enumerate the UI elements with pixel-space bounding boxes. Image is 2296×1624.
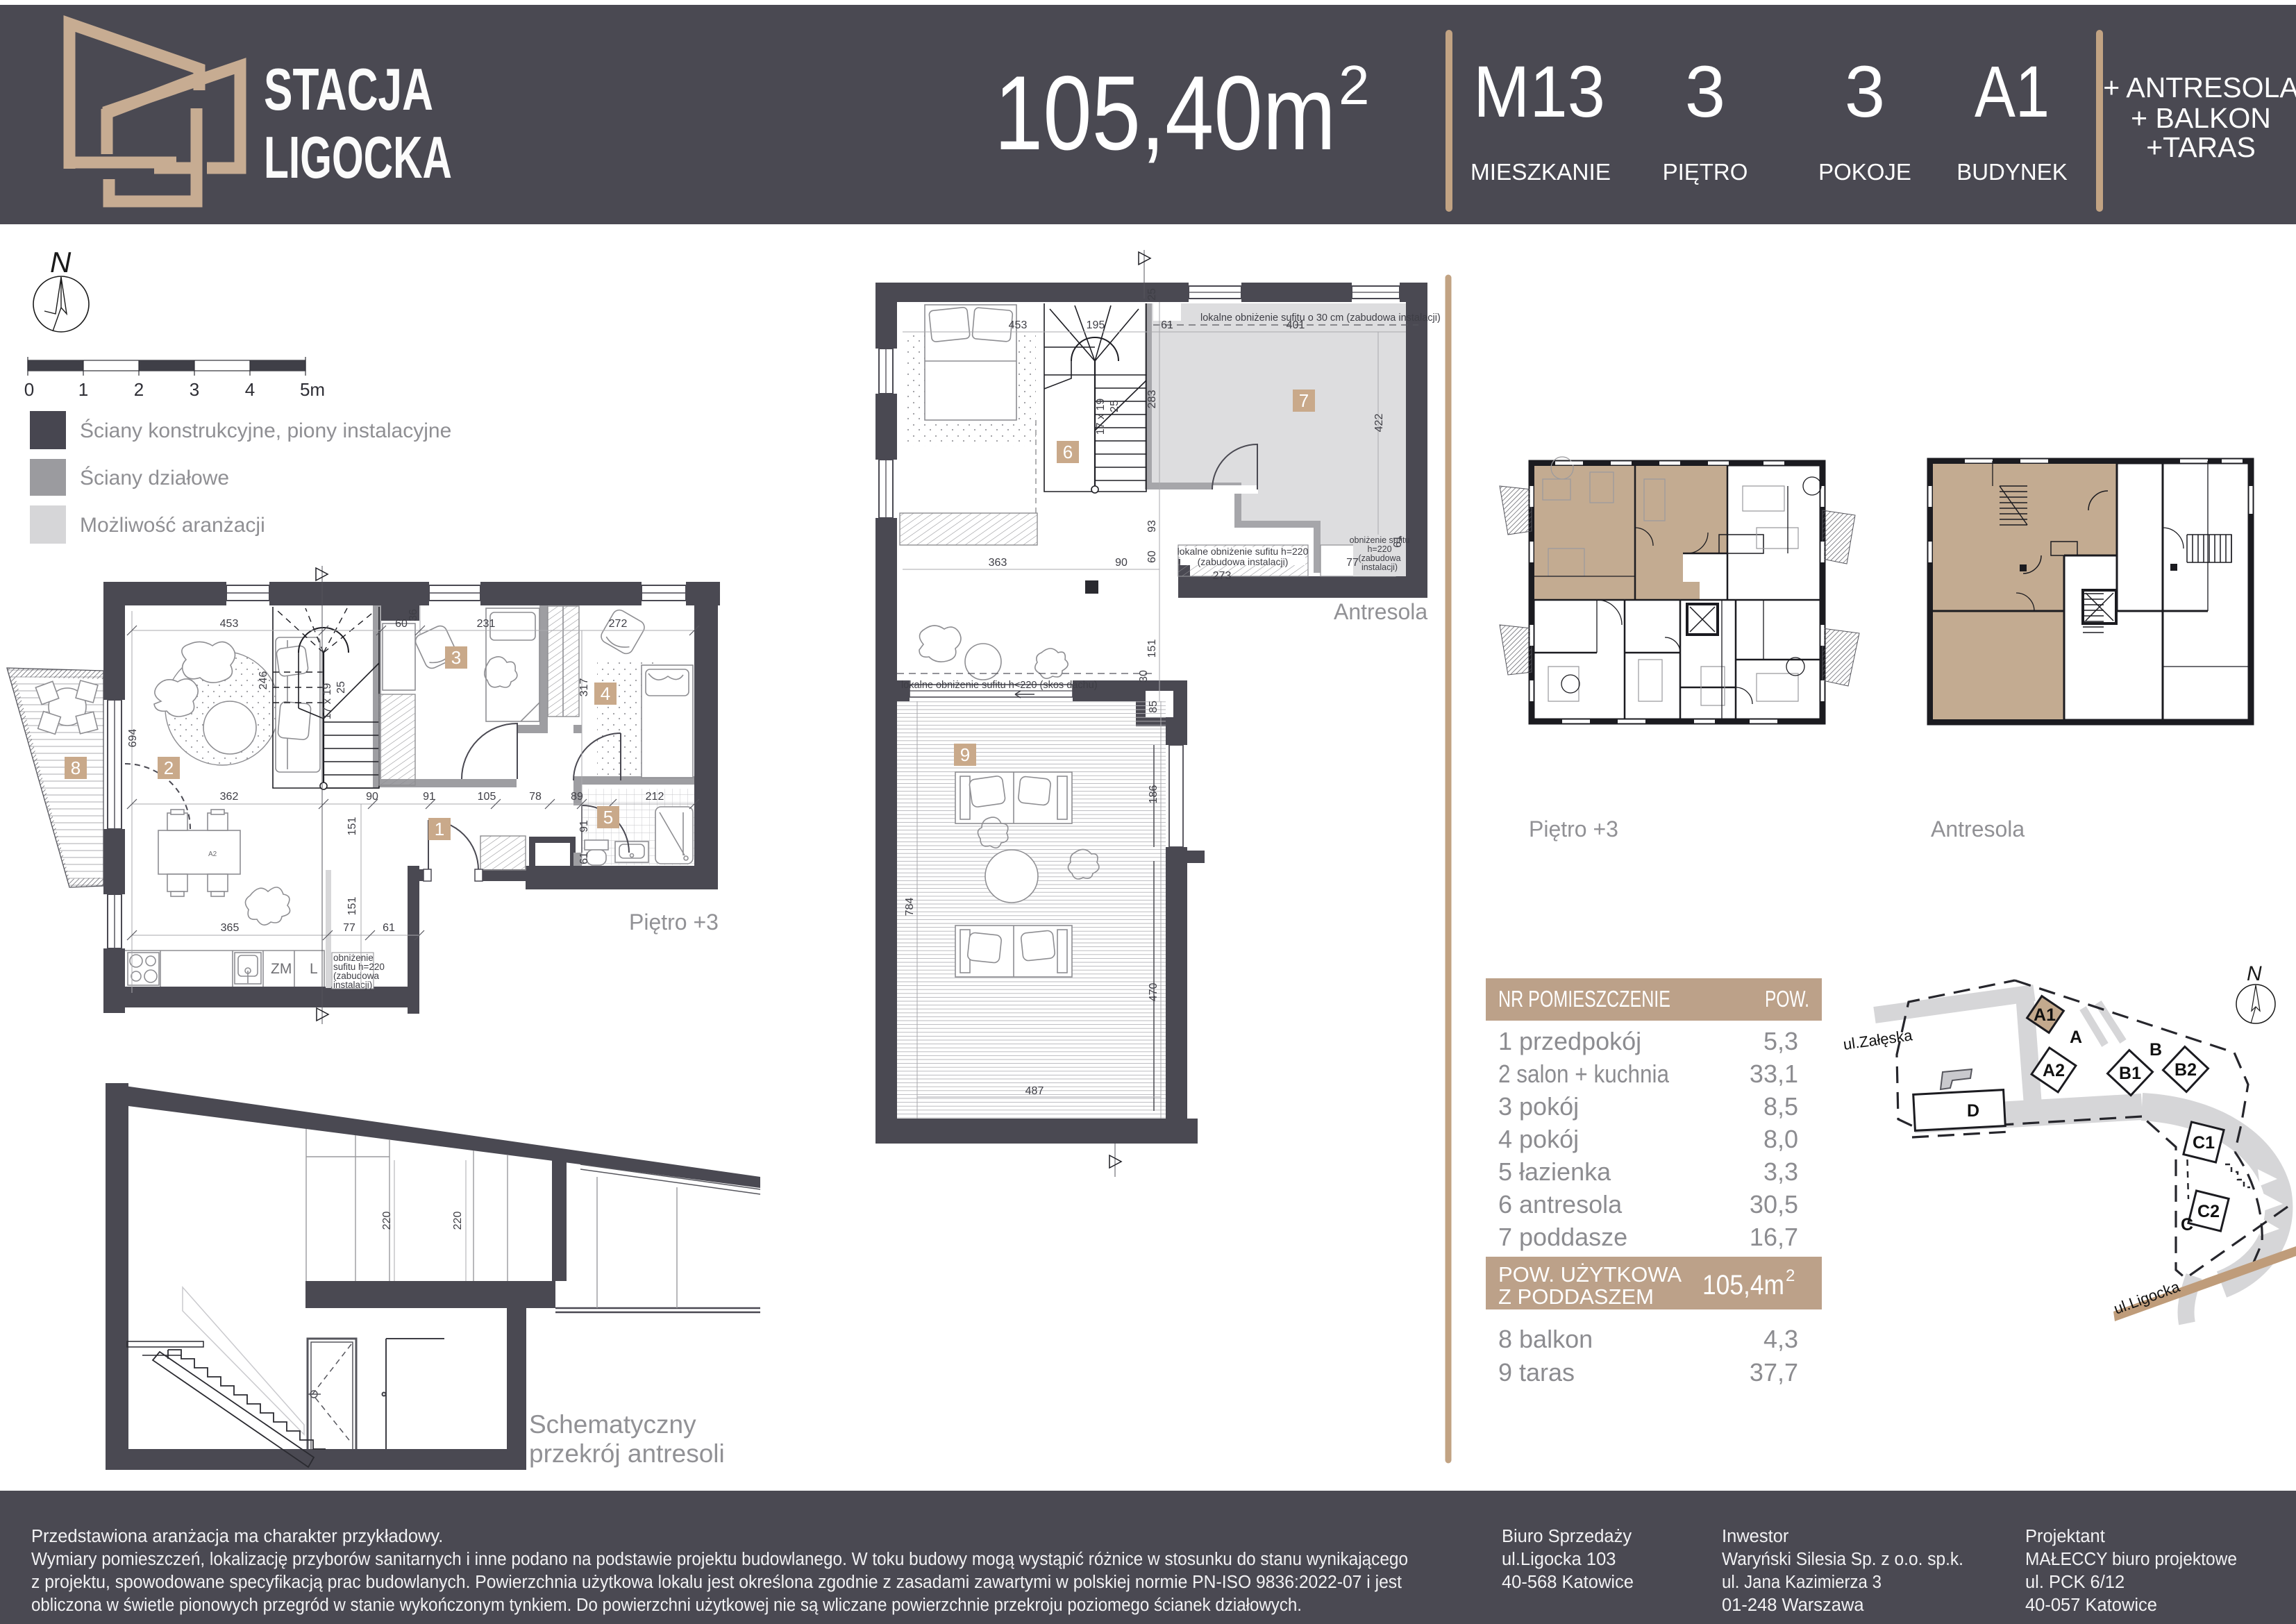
svg-text:ul. Jana Kazimierza 3: ul. Jana Kazimierza 3 bbox=[1722, 1573, 1882, 1592]
svg-text:401: 401 bbox=[1287, 319, 1305, 331]
svg-text:3: 3 bbox=[1845, 51, 1885, 133]
svg-text:105,4m: 105,4m bbox=[1702, 1270, 1784, 1300]
svg-text:220: 220 bbox=[452, 1212, 464, 1230]
svg-text:40-057 Katowice: 40-057 Katowice bbox=[2025, 1596, 2157, 1615]
svg-text:1: 1 bbox=[435, 819, 444, 839]
svg-text:2: 2 bbox=[164, 757, 174, 778]
svg-text:A1: A1 bbox=[2034, 1005, 2056, 1025]
svg-text:(zabudowa: (zabudowa bbox=[1358, 553, 1400, 563]
svg-text:STACJA: STACJA bbox=[264, 57, 433, 123]
svg-text:POW. UŻYTKOWA: POW. UŻYTKOWA bbox=[1498, 1262, 1682, 1287]
svg-text:L: L bbox=[310, 961, 318, 977]
svg-text:Piętro +3: Piętro +3 bbox=[629, 910, 719, 935]
svg-text:61: 61 bbox=[1392, 535, 1404, 548]
svg-text:30: 30 bbox=[1138, 670, 1150, 683]
svg-text:lokalne obniżenie sufitu h<220: lokalne obniżenie sufitu h<220 (skos dac… bbox=[901, 680, 1098, 691]
svg-text:5 łazienka: 5 łazienka bbox=[1498, 1157, 1611, 1186]
svg-text:7 poddasze: 7 poddasze bbox=[1498, 1223, 1627, 1251]
svg-text:01-248 Warszawa: 01-248 Warszawa bbox=[1722, 1596, 1864, 1615]
svg-text:Ściany konstrukcyjne, piony in: Ściany konstrukcyjne, piony instalacyjne bbox=[80, 419, 451, 442]
svg-text:8: 8 bbox=[71, 757, 81, 778]
svg-text:453: 453 bbox=[220, 618, 239, 630]
svg-text:30,5: 30,5 bbox=[1750, 1190, 1798, 1219]
svg-text:0: 0 bbox=[24, 379, 34, 400]
svg-text:4 pokój: 4 pokój bbox=[1498, 1125, 1579, 1153]
svg-text:A2: A2 bbox=[208, 851, 217, 858]
svg-text:422: 422 bbox=[1373, 414, 1385, 433]
svg-text:lokalne obniżenie sufitu h=220: lokalne obniżenie sufitu h=220 bbox=[1178, 546, 1309, 557]
svg-text:instalacji): instalacji) bbox=[333, 980, 372, 990]
svg-text:470: 470 bbox=[1148, 983, 1159, 1002]
svg-text:lokalne obniżenie sufitu o 30: lokalne obniżenie sufitu o 30 cm (zabudo… bbox=[1200, 312, 1441, 324]
svg-text:7: 7 bbox=[1299, 390, 1309, 411]
svg-text:365: 365 bbox=[221, 922, 240, 934]
svg-text:C: C bbox=[2181, 1215, 2193, 1234]
svg-text:Projektant: Projektant bbox=[2025, 1527, 2105, 1546]
svg-text:36: 36 bbox=[408, 609, 419, 621]
svg-text:1: 1 bbox=[78, 379, 88, 400]
svg-text:+ BALKON: + BALKON bbox=[2131, 102, 2271, 134]
svg-text:ZM: ZM bbox=[271, 961, 292, 977]
svg-text:61: 61 bbox=[578, 852, 590, 864]
svg-text:91: 91 bbox=[423, 791, 435, 803]
svg-text:5,3: 5,3 bbox=[1763, 1027, 1798, 1055]
svg-text:3,3: 3,3 bbox=[1763, 1157, 1798, 1186]
svg-text:4: 4 bbox=[245, 379, 255, 400]
svg-text:2: 2 bbox=[1786, 1266, 1795, 1285]
svg-text:B: B bbox=[2150, 1040, 2162, 1060]
svg-text:Schematyczny: Schematyczny bbox=[529, 1410, 696, 1439]
svg-text:MIESZKANIE: MIESZKANIE bbox=[1470, 159, 1611, 185]
svg-text:B2: B2 bbox=[2175, 1060, 2197, 1080]
svg-text:1 przedpokój: 1 przedpokój bbox=[1498, 1027, 1641, 1055]
svg-text:3: 3 bbox=[1685, 51, 1725, 133]
svg-text:+TARAS: +TARAS bbox=[2146, 131, 2256, 163]
svg-text:M13: M13 bbox=[1473, 51, 1605, 133]
svg-text:40-568 Katowice: 40-568 Katowice bbox=[1502, 1573, 1634, 1592]
svg-text:151: 151 bbox=[346, 897, 358, 916]
svg-text:A: A bbox=[2070, 1028, 2082, 1047]
svg-text:8,5: 8,5 bbox=[1763, 1092, 1798, 1121]
svg-text:85: 85 bbox=[1148, 701, 1159, 713]
svg-text:9: 9 bbox=[960, 744, 970, 765]
svg-text:Antresola: Antresola bbox=[1334, 599, 1427, 624]
svg-text:90: 90 bbox=[1115, 557, 1128, 569]
svg-text:246: 246 bbox=[258, 671, 269, 690]
svg-text:ul.Ligocka 103: ul.Ligocka 103 bbox=[1502, 1550, 1616, 1569]
svg-text:5: 5 bbox=[603, 807, 613, 828]
svg-text:2 salon + kuchnia: 2 salon + kuchnia bbox=[1498, 1060, 1670, 1088]
svg-text:5m: 5m bbox=[300, 379, 325, 400]
svg-text:przekrój antresoli: przekrój antresoli bbox=[529, 1439, 725, 1468]
svg-text:105: 105 bbox=[478, 791, 496, 803]
svg-text:ul. PCK 6/12: ul. PCK 6/12 bbox=[2025, 1573, 2125, 1592]
svg-text:694: 694 bbox=[127, 729, 139, 748]
svg-text:N: N bbox=[2247, 962, 2262, 985]
svg-text:151: 151 bbox=[346, 817, 358, 836]
svg-text:105,40m: 105,40m bbox=[994, 54, 1336, 172]
svg-text:Przedstawiona aranżacja ma cha: Przedstawiona aranżacja ma charakter prz… bbox=[31, 1527, 443, 1546]
svg-text:C2: C2 bbox=[2197, 1202, 2220, 1221]
svg-text:317: 317 bbox=[578, 678, 590, 697]
svg-text:186: 186 bbox=[1148, 785, 1159, 804]
svg-text:37,7: 37,7 bbox=[1750, 1358, 1798, 1387]
svg-text:283: 283 bbox=[1146, 390, 1158, 409]
svg-text:4,3: 4,3 bbox=[1763, 1325, 1798, 1353]
svg-text:Wymiary pomieszczeń, lokalizac: Wymiary pomieszczeń, lokalizację przybor… bbox=[31, 1550, 1408, 1569]
svg-text:2: 2 bbox=[1339, 54, 1370, 116]
svg-text:77: 77 bbox=[1346, 557, 1359, 569]
svg-text:3 pokój: 3 pokój bbox=[1498, 1092, 1579, 1121]
svg-text:90: 90 bbox=[366, 791, 378, 803]
svg-text:2: 2 bbox=[134, 379, 144, 400]
svg-text:273: 273 bbox=[1213, 570, 1232, 582]
svg-text:4: 4 bbox=[601, 683, 610, 704]
svg-text:6: 6 bbox=[1063, 442, 1073, 462]
svg-text:instalacji): instalacji) bbox=[1361, 562, 1398, 572]
svg-text:Biuro Sprzedaży: Biuro Sprzedaży bbox=[1502, 1527, 1632, 1546]
svg-text:91: 91 bbox=[578, 820, 590, 832]
svg-text:POKOJE: POKOJE bbox=[1818, 159, 1911, 185]
svg-text:33,1: 33,1 bbox=[1750, 1060, 1798, 1088]
svg-text:BUDYNEK: BUDYNEK bbox=[1956, 159, 2068, 185]
svg-text:231: 231 bbox=[477, 618, 496, 630]
svg-text:A1: A1 bbox=[1975, 51, 2050, 133]
svg-text:NR POMIESZCZENIE: NR POMIESZCZENIE bbox=[1498, 986, 1670, 1012]
svg-text:POW.: POW. bbox=[1765, 986, 1809, 1012]
svg-text:h=220: h=220 bbox=[1367, 544, 1391, 554]
svg-text:89: 89 bbox=[571, 791, 583, 803]
svg-text:60: 60 bbox=[1146, 551, 1158, 563]
svg-text:78: 78 bbox=[529, 791, 542, 803]
svg-text:+ ANTRESOLA: + ANTRESOLA bbox=[2103, 72, 2296, 103]
svg-text:3: 3 bbox=[190, 379, 199, 400]
svg-text:LIGOCKA: LIGOCKA bbox=[264, 125, 452, 191]
svg-text:N: N bbox=[50, 246, 72, 278]
svg-text:8 balkon: 8 balkon bbox=[1498, 1325, 1593, 1353]
svg-text:212: 212 bbox=[646, 791, 664, 803]
svg-text:D: D bbox=[1967, 1101, 1979, 1121]
svg-text:93: 93 bbox=[1146, 520, 1158, 533]
svg-text:60: 60 bbox=[395, 618, 408, 630]
svg-text:C1: C1 bbox=[2193, 1133, 2215, 1153]
svg-text:61: 61 bbox=[383, 922, 395, 934]
svg-text:220: 220 bbox=[381, 1212, 393, 1230]
svg-text:6 antresola: 6 antresola bbox=[1498, 1190, 1623, 1219]
svg-text:Piętro +3: Piętro +3 bbox=[1529, 817, 1618, 842]
svg-text:151: 151 bbox=[1146, 639, 1158, 658]
svg-text:17 x 19: 17 x 19 bbox=[1095, 399, 1107, 435]
svg-text:Możliwość aranżacji: Możliwość aranżacji bbox=[80, 514, 265, 537]
svg-text:272: 272 bbox=[609, 618, 628, 630]
svg-text:25: 25 bbox=[1146, 288, 1158, 301]
svg-text:Antresola: Antresola bbox=[1931, 817, 2025, 842]
svg-text:25: 25 bbox=[1109, 400, 1121, 412]
svg-text:362: 362 bbox=[220, 791, 239, 803]
svg-text:(zabudowa instalacji): (zabudowa instalacji) bbox=[1198, 556, 1289, 567]
svg-text:363: 363 bbox=[989, 557, 1007, 569]
svg-text:Ściany działowe: Ściany działowe bbox=[80, 466, 229, 489]
svg-text:Z PODDASZEM: Z PODDASZEM bbox=[1498, 1284, 1654, 1309]
svg-text:195: 195 bbox=[1087, 319, 1105, 331]
svg-text:25: 25 bbox=[335, 681, 347, 694]
svg-text:8,0: 8,0 bbox=[1763, 1125, 1798, 1153]
svg-text:A2: A2 bbox=[2043, 1061, 2065, 1080]
svg-text:z projektu, spowodowane specyf: z projektu, spowodowane specyfikacją pra… bbox=[31, 1573, 1402, 1592]
svg-text:77: 77 bbox=[343, 922, 355, 934]
svg-text:Waryński Silesia Sp. z o.o. sp: Waryński Silesia Sp. z o.o. sp.k. bbox=[1722, 1550, 1963, 1569]
svg-text:784: 784 bbox=[904, 898, 916, 916]
svg-text:9 taras: 9 taras bbox=[1498, 1358, 1575, 1387]
svg-text:PIĘTRO: PIĘTRO bbox=[1663, 159, 1748, 185]
svg-text:16,7: 16,7 bbox=[1750, 1223, 1798, 1251]
svg-text:453: 453 bbox=[1009, 319, 1028, 331]
svg-text:17 x 19: 17 x 19 bbox=[321, 683, 333, 720]
svg-text:3: 3 bbox=[451, 647, 461, 668]
svg-text:487: 487 bbox=[1025, 1085, 1044, 1097]
svg-text:B1: B1 bbox=[2119, 1064, 2141, 1083]
svg-text:61: 61 bbox=[1161, 319, 1173, 331]
svg-text:MAŁECCY biuro projektowe: MAŁECCY biuro projektowe bbox=[2025, 1550, 2237, 1569]
svg-text:obliczona w świetle pionowych: obliczona w świetle pionowych przegród w… bbox=[31, 1596, 1302, 1615]
svg-text:Inwestor: Inwestor bbox=[1722, 1527, 1789, 1546]
